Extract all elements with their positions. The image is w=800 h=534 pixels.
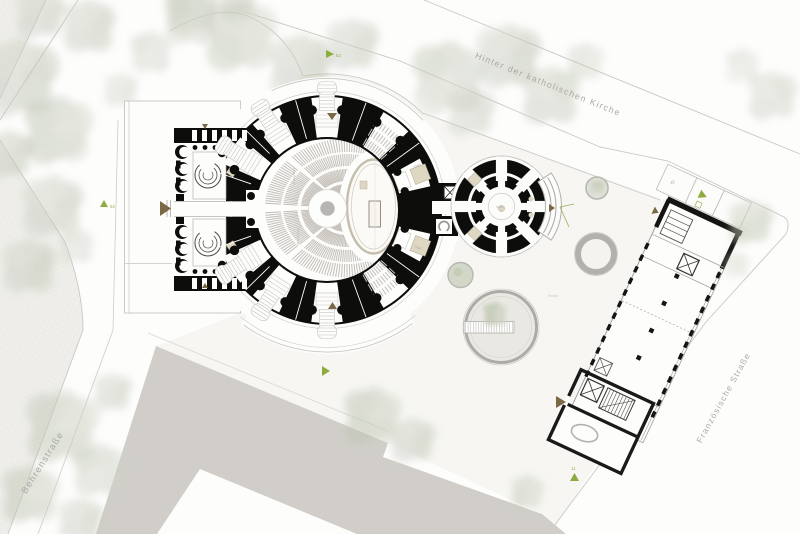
svg-text:30 Sitzplätze: 30 Sitzplätze — [292, 167, 296, 185]
svg-text:30 Sitzplätze: 30 Sitzplätze — [296, 227, 300, 245]
svg-text:52: 52 — [336, 53, 342, 58]
svg-text:11: 11 — [571, 466, 576, 471]
svg-text:Forum: Forum — [548, 294, 558, 298]
svg-text:52: 52 — [110, 204, 116, 209]
svg-text:Taufe: Taufe — [496, 205, 504, 209]
